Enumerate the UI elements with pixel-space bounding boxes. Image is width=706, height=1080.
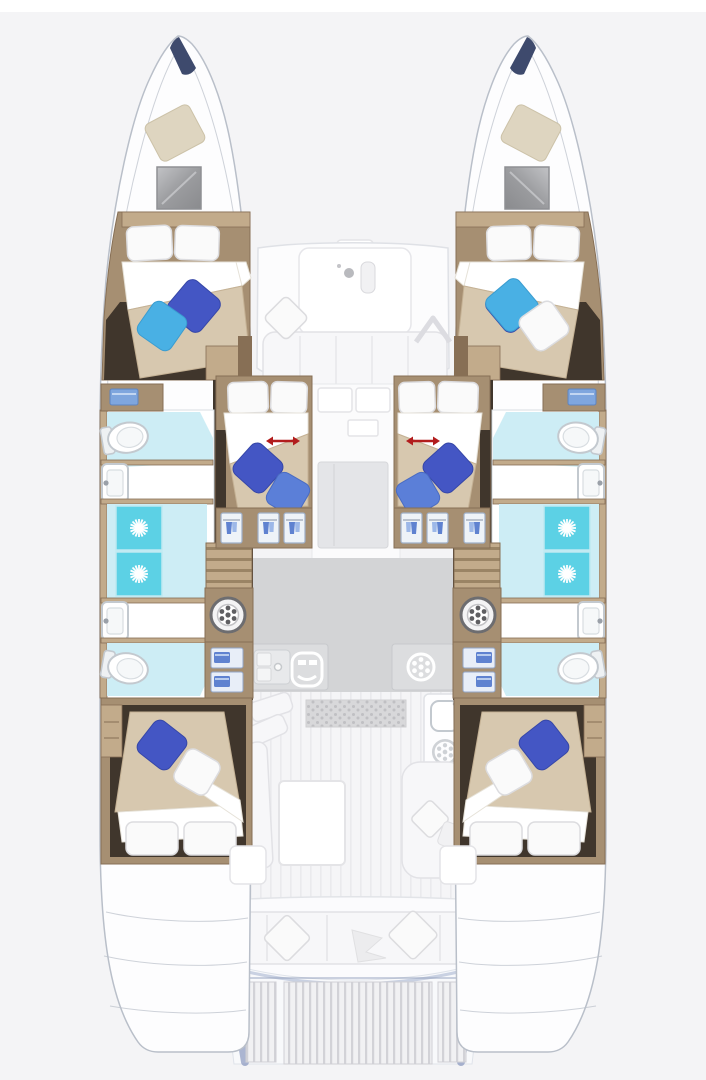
companionway	[312, 384, 400, 562]
foredeck-lounge	[257, 240, 450, 388]
salon-table	[279, 781, 345, 865]
mid-cabin-port	[216, 376, 313, 548]
foredeck-table	[299, 248, 411, 334]
teak-slats	[246, 982, 276, 1062]
galley-sink-icon	[254, 650, 290, 684]
galley-mat	[306, 700, 406, 727]
mid-cabin-starboard	[393, 376, 490, 548]
catamaran-plan-svg	[0, 0, 706, 1080]
teak-slats	[284, 982, 432, 1064]
salon-steps	[318, 462, 388, 548]
salon-galley	[245, 558, 468, 910]
floor-plan	[0, 0, 706, 1080]
swim-platform	[222, 962, 484, 1064]
